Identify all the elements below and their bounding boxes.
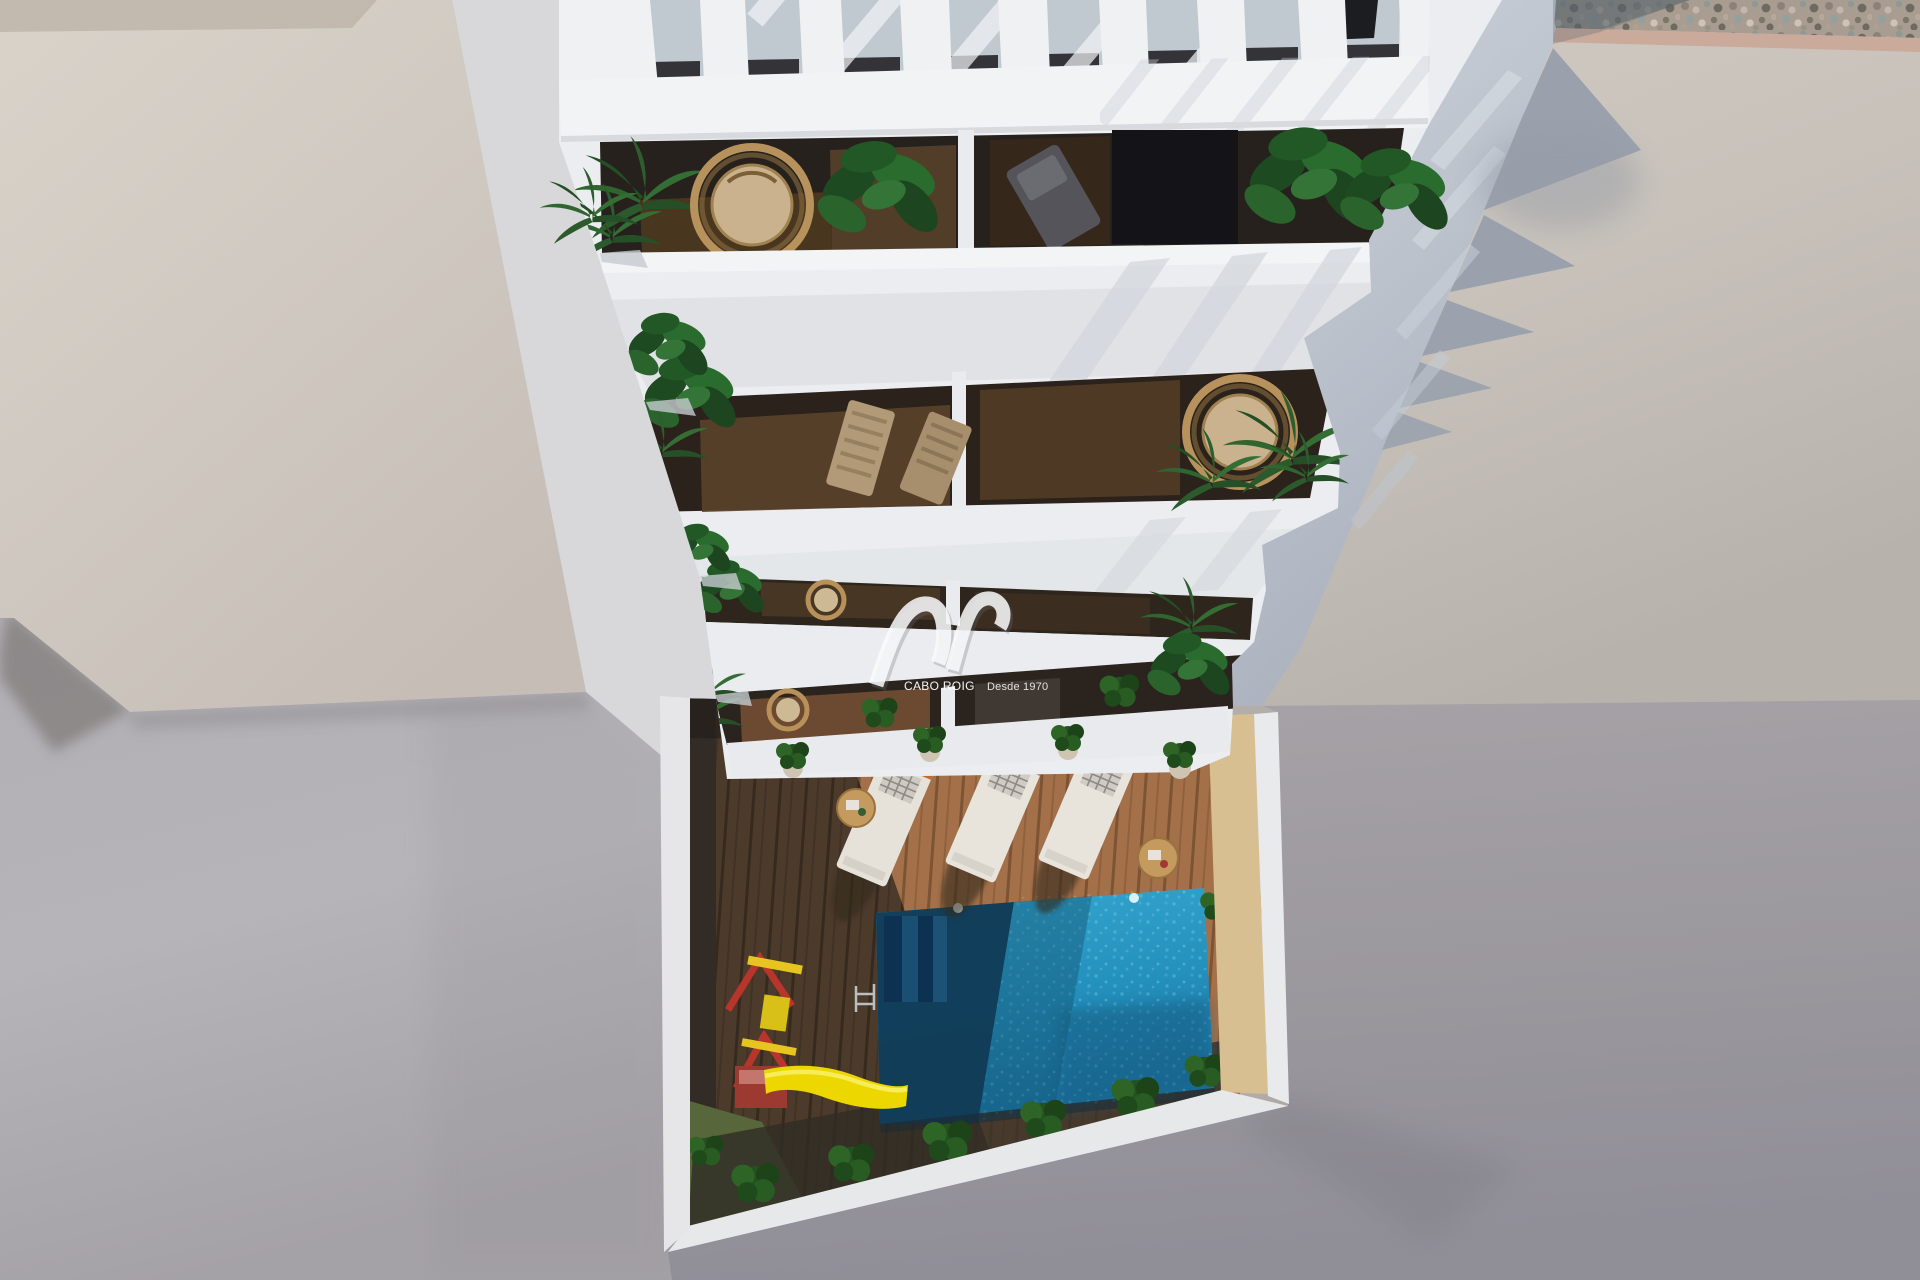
svg-text:Desde 1970: Desde 1970: [987, 681, 1048, 693]
svg-text:CABO ROIG: CABO ROIG: [904, 679, 975, 693]
